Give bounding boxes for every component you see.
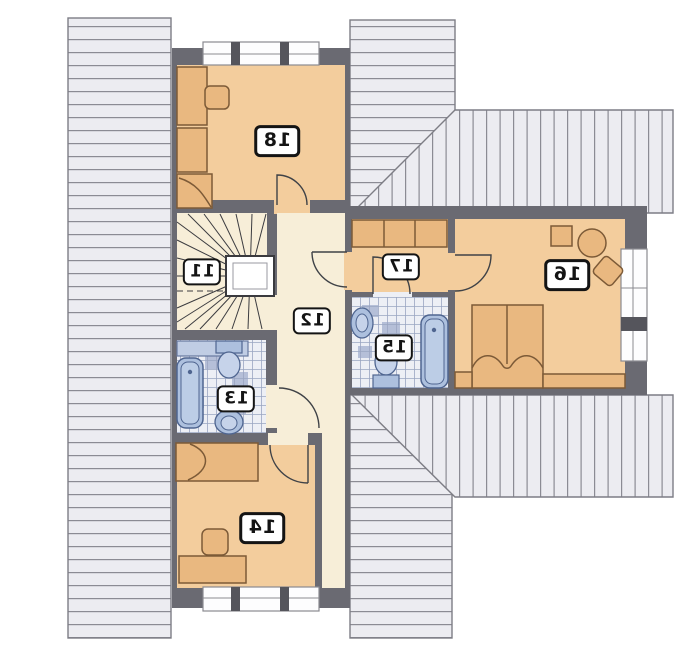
room-number-11: 11 <box>189 261 215 281</box>
room-number-13: 13 <box>223 388 249 408</box>
roof-left-band <box>68 18 171 638</box>
chair-room-14 <box>202 529 228 555</box>
sink-basin-13 <box>221 416 237 430</box>
doorway-room-14 <box>268 433 308 445</box>
doorway-bathroom-13 <box>266 385 277 428</box>
bathtub-drain-15 <box>432 328 436 332</box>
room-label-17: 17 <box>382 253 420 280</box>
desk-room-14 <box>179 556 246 583</box>
bench-room-16 <box>543 374 625 388</box>
wardrobe-room-17 <box>352 220 447 247</box>
bathtub-drain-13 <box>188 370 192 374</box>
toilet-tank-15 <box>373 375 399 388</box>
hall-strip-floor <box>322 433 345 588</box>
doorway-room-18 <box>274 199 310 214</box>
room-label-18: 18 <box>254 125 300 157</box>
window-bottom <box>203 587 319 611</box>
desk-room-18 <box>177 67 207 125</box>
room-number-12: 12 <box>299 310 325 330</box>
room-number-14: 14 <box>248 516 276 538</box>
chair-room-18 <box>205 86 229 109</box>
doorway-bathroom-15 <box>373 292 412 297</box>
nightstand-room-16 <box>455 372 472 388</box>
sink-basin-15 <box>356 314 368 332</box>
floor-plan-svg <box>0 0 700 668</box>
room-number-17: 17 <box>388 256 414 276</box>
dresser-room-18 <box>177 128 207 172</box>
window-top <box>203 42 319 65</box>
window-right <box>621 249 647 361</box>
room-label-12: 12 <box>293 307 331 334</box>
doorway-hall-17 <box>344 252 353 290</box>
stair-landing <box>226 256 274 296</box>
wardrobe-room-14 <box>176 443 258 481</box>
toilet-bathroom-13 <box>218 352 240 378</box>
table-room-16 <box>551 226 572 246</box>
floor-plan-canvas: 11 12 13 14 15 16 17 18 <box>0 0 700 668</box>
room-label-14: 14 <box>239 512 285 544</box>
round-table-room-16 <box>578 229 606 257</box>
room-number-16: 16 <box>553 263 581 285</box>
stair-hall-opening <box>267 295 277 330</box>
toilet-tank-13 <box>216 341 242 353</box>
room-number-15: 15 <box>381 337 407 357</box>
room-label-13: 13 <box>217 385 255 412</box>
doorway-room-16 <box>448 253 455 290</box>
room-label-11: 11 <box>183 258 221 285</box>
room-number-18: 18 <box>263 129 291 151</box>
room-label-15: 15 <box>375 334 413 361</box>
room-label-16: 16 <box>544 259 590 291</box>
